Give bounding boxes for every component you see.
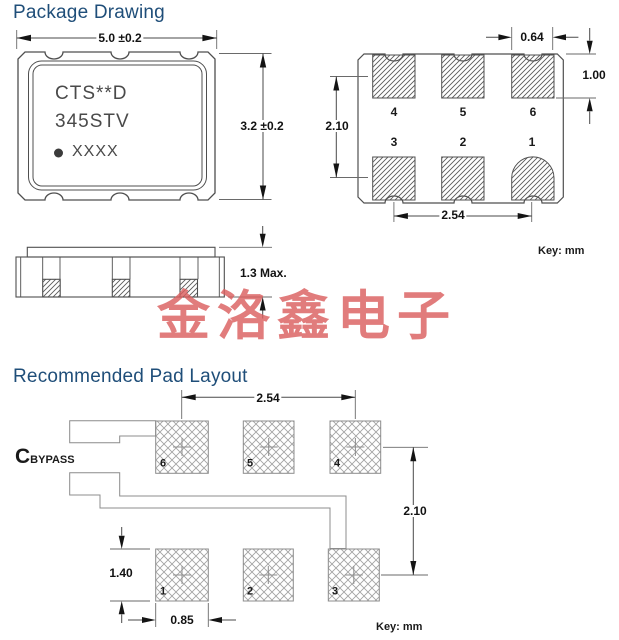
layout-pad-number-5: 5 [247, 459, 253, 470]
pad-number-6: 6 [530, 106, 537, 118]
dim-label-pad-height: 1.00 [580, 69, 607, 81]
datasheet-page: Package Drawing 5.0 ±0.2 3.2 ±0.2 CTS**D… [0, 0, 619, 640]
dim-label-col-pitch: 2.54 [439, 209, 466, 221]
layout-pad-number-6: 6 [160, 459, 166, 470]
arrowhead-up-icon [119, 601, 125, 614]
pad-4-hatch [373, 55, 415, 98]
arrowhead-up-icon [410, 447, 416, 461]
arrowhead-right-icon [202, 35, 216, 41]
pad-number-4: 4 [391, 106, 398, 118]
pad-5-hatch [442, 55, 484, 98]
arrowhead-down-icon [587, 41, 593, 54]
package-drawing-title: Package Drawing [13, 3, 165, 22]
arrowhead-up-icon [587, 98, 593, 111]
layout-pad-number-2: 2 [247, 587, 253, 598]
trace-to-pad-3 [70, 473, 346, 549]
dim-label-max-height: 1.3 Max. [238, 267, 289, 279]
arrowhead-down-icon [260, 234, 266, 248]
arrowhead-down-icon [119, 536, 125, 549]
arrowhead-right-icon [498, 34, 511, 40]
watermark-text: 金洛鑫电子 [157, 290, 457, 343]
dim-label-layout-pad-width: 0.85 [168, 614, 195, 626]
dim-label-layout-col-pitch: 2.54 [254, 392, 281, 404]
dim-label-pad-width: 0.64 [518, 31, 545, 43]
side-pad-hatch [43, 279, 61, 297]
arrowhead-left-icon [553, 34, 566, 40]
arrowhead-up-icon [333, 77, 339, 91]
pad-number-2: 2 [460, 136, 467, 148]
arrowhead-left-icon [182, 394, 196, 400]
pad-3-hatch [373, 157, 415, 200]
dim-label-layout-row-pitch: 2.10 [401, 505, 428, 517]
arrowhead-left-icon [17, 35, 31, 41]
pad-layout-title: Recommended Pad Layout [13, 367, 248, 386]
bypass-capacitor-label: CBYPASS [15, 446, 75, 467]
arrowhead-right-icon [142, 617, 156, 623]
layout-pad-number-1: 1 [160, 587, 166, 598]
package-bottom-view [358, 54, 563, 203]
trace-to-pad-6 [70, 421, 156, 443]
layout-pad-number-3: 3 [332, 587, 338, 598]
pad-2-hatch [442, 157, 484, 200]
arrowhead-down-icon [333, 164, 339, 178]
package-marking-line2: 345STV [55, 112, 130, 131]
arrowhead-left-icon [208, 617, 222, 623]
dim-label-layout-pad-height: 1.40 [107, 567, 134, 579]
layout-pad-number-4: 4 [334, 459, 340, 470]
arrowhead-down-icon [410, 561, 416, 575]
arrowhead-left-icon [394, 213, 408, 219]
arrowhead-up-icon [260, 54, 266, 68]
package-marking-line1: CTS**D [55, 84, 128, 103]
pin1-dot [54, 149, 63, 158]
dim-label-height: 3.2 ±0.2 [238, 120, 285, 132]
bypass-label-c: C [15, 446, 30, 467]
arrowhead-right-icon [341, 394, 355, 400]
pad-number-5: 5 [460, 106, 467, 118]
layout-pads [156, 421, 381, 601]
dim-label-row-pitch: 2.10 [323, 120, 350, 132]
side-view-lid [27, 247, 215, 257]
key-units-label-bottom: Key: mm [376, 622, 422, 633]
dim-label-width: 5.0 ±0.2 [96, 32, 143, 44]
arrowhead-down-icon [260, 186, 266, 200]
package-marking-line3: XXXX [72, 144, 119, 160]
arrowhead-right-icon [518, 213, 532, 219]
key-units-label-top: Key: mm [538, 246, 584, 257]
side-pad-hatch [112, 279, 130, 297]
pad-number-3: 3 [391, 136, 398, 148]
pad-6-hatch [512, 55, 554, 98]
pad-number-1: 1 [529, 136, 536, 148]
pad-1-dome-hatch [512, 157, 554, 200]
bypass-label-sub: BYPASS [30, 455, 74, 466]
